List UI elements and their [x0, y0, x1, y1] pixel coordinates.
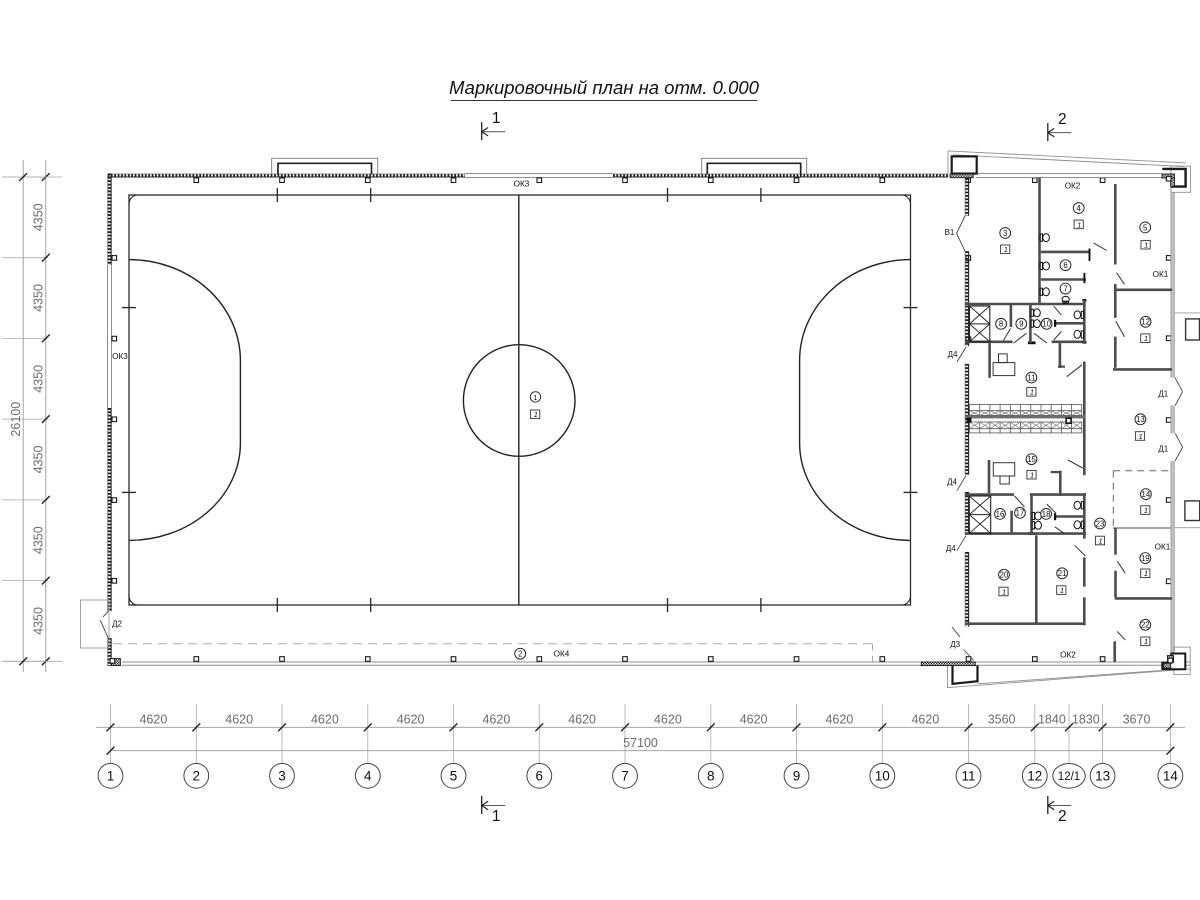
svg-text:Маркировочный план на отм. 0.0: Маркировочный план на отм. 0.000: [449, 77, 760, 98]
svg-text:26100: 26100: [9, 402, 23, 437]
svg-text:Д4: Д4: [948, 350, 958, 359]
svg-text:1: 1: [534, 410, 538, 419]
svg-text:4620: 4620: [397, 713, 425, 727]
svg-text:16: 16: [996, 510, 1005, 519]
svg-text:ОК1: ОК1: [1155, 542, 1171, 551]
svg-text:ОК2: ОК2: [1065, 181, 1081, 190]
svg-text:22: 22: [1141, 621, 1150, 630]
svg-text:4620: 4620: [654, 713, 682, 727]
svg-text:ОК2: ОК2: [1060, 650, 1076, 659]
svg-text:1: 1: [1030, 388, 1034, 397]
svg-text:12: 12: [1027, 769, 1042, 784]
svg-text:Д1: Д1: [1158, 389, 1168, 398]
svg-text:3670: 3670: [1123, 713, 1151, 727]
svg-text:23: 23: [1096, 519, 1105, 528]
svg-text:1: 1: [1139, 432, 1143, 441]
svg-text:10: 10: [875, 769, 890, 784]
svg-text:2: 2: [1058, 808, 1067, 825]
svg-text:1: 1: [1030, 471, 1034, 480]
svg-text:3560: 3560: [988, 713, 1016, 727]
svg-text:19: 19: [1141, 554, 1150, 563]
svg-text:8: 8: [707, 769, 715, 784]
svg-text:17: 17: [1016, 509, 1025, 518]
svg-text:1: 1: [1077, 220, 1081, 229]
svg-text:5: 5: [450, 769, 458, 784]
svg-text:13: 13: [1095, 769, 1110, 784]
svg-text:Д2: Д2: [112, 620, 122, 629]
svg-text:3: 3: [278, 769, 286, 784]
svg-text:4620: 4620: [225, 713, 253, 727]
svg-text:ОК1: ОК1: [1153, 270, 1169, 279]
svg-text:3: 3: [1003, 229, 1007, 238]
svg-text:4: 4: [364, 769, 372, 784]
svg-text:18: 18: [1042, 510, 1051, 519]
svg-text:1: 1: [492, 808, 501, 825]
svg-text:57100: 57100: [623, 736, 658, 750]
svg-text:4350: 4350: [32, 365, 46, 393]
svg-text:13: 13: [1136, 415, 1145, 424]
svg-text:1: 1: [1060, 586, 1064, 595]
svg-text:1: 1: [1144, 241, 1148, 250]
svg-text:4: 4: [1077, 204, 1082, 213]
svg-text:2: 2: [518, 650, 522, 659]
svg-text:Д4: Д4: [946, 544, 956, 553]
svg-text:6: 6: [536, 769, 544, 784]
svg-text:4350: 4350: [32, 446, 46, 474]
svg-text:9: 9: [1019, 320, 1023, 329]
svg-text:20: 20: [1000, 571, 1009, 580]
svg-text:6: 6: [1063, 261, 1067, 270]
svg-text:4620: 4620: [740, 713, 768, 727]
svg-text:4350: 4350: [32, 526, 46, 554]
svg-text:10: 10: [1042, 320, 1051, 329]
svg-text:7: 7: [1063, 285, 1067, 294]
svg-text:1: 1: [1144, 506, 1148, 515]
svg-text:4350: 4350: [32, 203, 46, 231]
svg-text:1840: 1840: [1038, 713, 1066, 727]
svg-text:Д4: Д4: [947, 478, 957, 487]
svg-text:1: 1: [1144, 569, 1148, 578]
svg-text:4620: 4620: [825, 713, 853, 727]
svg-text:7: 7: [621, 769, 629, 784]
svg-text:9: 9: [793, 769, 801, 784]
svg-text:4350: 4350: [32, 607, 46, 635]
svg-text:21: 21: [1058, 569, 1067, 578]
svg-text:В1: В1: [945, 228, 955, 237]
svg-text:5: 5: [1143, 223, 1148, 232]
svg-text:1830: 1830: [1072, 713, 1100, 727]
svg-text:12/1: 12/1: [1058, 771, 1080, 783]
svg-text:15: 15: [1027, 455, 1036, 464]
svg-text:4350: 4350: [32, 284, 46, 312]
svg-text:4620: 4620: [139, 713, 167, 727]
svg-text:1: 1: [1099, 536, 1103, 545]
svg-text:14: 14: [1163, 769, 1179, 784]
svg-text:ОК3: ОК3: [514, 180, 530, 189]
svg-text:1: 1: [1144, 637, 1148, 646]
svg-text:1: 1: [1004, 245, 1008, 254]
svg-text:11: 11: [961, 769, 975, 784]
svg-text:1: 1: [107, 769, 115, 784]
svg-text:8: 8: [999, 320, 1003, 329]
svg-text:Д1: Д1: [1158, 444, 1168, 453]
svg-text:ОК4: ОК4: [554, 650, 570, 659]
svg-text:1: 1: [533, 393, 537, 402]
svg-text:4620: 4620: [911, 713, 939, 727]
svg-text:4620: 4620: [311, 713, 339, 727]
svg-text:11: 11: [1027, 373, 1035, 382]
svg-text:Д3: Д3: [950, 640, 960, 649]
svg-text:2: 2: [1058, 111, 1067, 128]
svg-text:4620: 4620: [482, 713, 510, 727]
svg-text:2: 2: [193, 769, 201, 784]
svg-text:4620: 4620: [568, 713, 596, 727]
svg-text:ОК3: ОК3: [112, 352, 128, 361]
svg-text:12: 12: [1141, 318, 1150, 327]
svg-text:14: 14: [1142, 490, 1151, 499]
svg-text:1: 1: [1144, 334, 1148, 343]
svg-text:1: 1: [1002, 587, 1006, 596]
svg-text:1: 1: [492, 110, 501, 127]
